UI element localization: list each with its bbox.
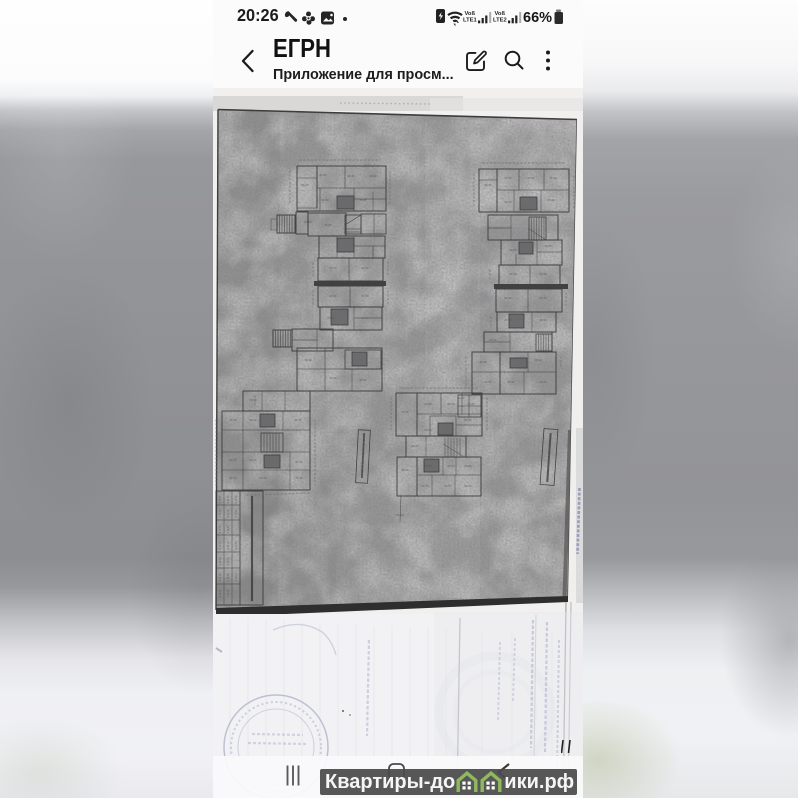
svg-text:Voß: Voß: [465, 11, 476, 17]
svg-text:Voß: Voß: [495, 11, 506, 17]
svg-text:LTE1: LTE1: [463, 18, 478, 24]
svg-text:66%: 66%: [523, 10, 552, 26]
svg-text:LTE2: LTE2: [493, 18, 507, 24]
